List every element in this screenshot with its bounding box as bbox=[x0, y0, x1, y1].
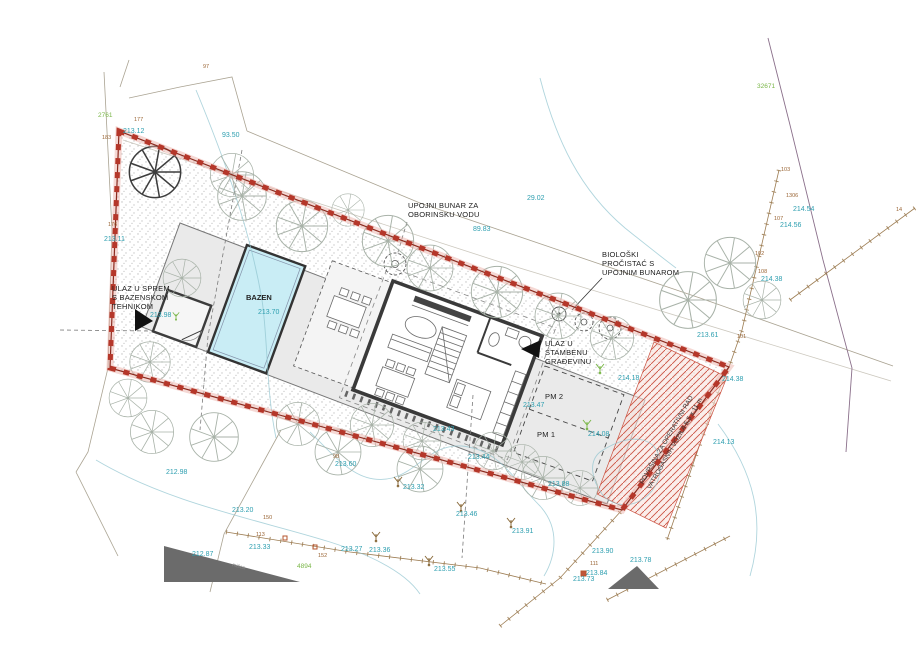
elevation-label: 213.44 bbox=[468, 454, 490, 461]
survey-point-id: 102 bbox=[755, 251, 764, 257]
survey-point-id: 150 bbox=[263, 515, 272, 521]
label-pm1: PM 1 bbox=[537, 430, 555, 439]
elevation-label: 213.55 bbox=[434, 566, 456, 573]
parcel-number: 32671 bbox=[757, 83, 775, 90]
survey-point-id: 111 bbox=[590, 561, 598, 567]
label-bio-purifier: BIOLOŠKI PROČISTAĆ S UPOJNIM BUNAROM bbox=[602, 250, 679, 277]
survey-point-id: 14 bbox=[896, 207, 902, 213]
elevation-label: 213.36 bbox=[369, 547, 391, 554]
boundary-length-label: 93.50 bbox=[222, 132, 240, 139]
survey-point-id: 103 bbox=[781, 167, 790, 173]
elevation-label: 213.12 bbox=[123, 128, 145, 135]
site-plan-canvas: mišca ULAZ U SPREM S BAZENSKOM TEHNIKOM … bbox=[0, 0, 919, 650]
elevation-label: 213.70 bbox=[258, 309, 280, 316]
label-storm-well: UPOJNI BUNAR ZA OBORINSKU VODU bbox=[408, 201, 480, 219]
elevation-label: 213.78 bbox=[630, 557, 652, 564]
boundary-length-label: 89.83 bbox=[473, 226, 491, 233]
elevation-label: 214.18 bbox=[618, 375, 640, 382]
survey-point-id: 183 bbox=[102, 135, 111, 141]
elevation-label: 214.38 bbox=[761, 276, 783, 283]
elevation-label: 213.47 bbox=[523, 402, 545, 409]
elevation-label: 213.60 bbox=[335, 461, 357, 468]
parcel-number: 2761 bbox=[98, 112, 113, 119]
label-pm2: PM 2 bbox=[545, 392, 563, 401]
elevation-label: 214.08 bbox=[588, 431, 610, 438]
elevation-label: 213.11 bbox=[104, 236, 125, 243]
elevation-label: 213.88 bbox=[548, 481, 570, 488]
elevation-label: 213.46 bbox=[456, 511, 478, 518]
survey-point-id: 107 bbox=[774, 216, 783, 222]
elevation-label: 213.73 bbox=[573, 576, 595, 583]
survey-point-id: 113 bbox=[256, 532, 265, 538]
elevation-label: 213.61 bbox=[697, 332, 719, 339]
elevation-label: 213.32 bbox=[403, 484, 425, 491]
elevation-label: 212.87 bbox=[192, 551, 214, 558]
elevation-label: 214.13 bbox=[713, 439, 735, 446]
survey-point-id: 152 bbox=[318, 553, 327, 559]
elevation-label: 213.43 bbox=[433, 426, 455, 433]
survey-point-id: 98 bbox=[333, 454, 339, 460]
elevation-label: 213.20 bbox=[232, 507, 254, 514]
label-pool: BAZEN bbox=[246, 293, 272, 302]
elevation-label: 214.54 bbox=[793, 206, 815, 213]
elevation-label: 213.90 bbox=[592, 548, 614, 555]
survey-point-id: 97 bbox=[203, 64, 209, 70]
boundary-length-label: 29.02 bbox=[527, 195, 545, 202]
site-plan: mišca ULAZ U SPREM S BAZENSKOM TEHNIKOM … bbox=[0, 0, 919, 650]
elevation-label: 213.27 bbox=[341, 546, 363, 553]
parcel-number: 4894 bbox=[297, 563, 312, 570]
survey-point-id: 108 bbox=[758, 269, 767, 275]
elevation-label: 213.91 bbox=[512, 528, 534, 535]
survey-point-id: 177 bbox=[134, 117, 143, 123]
elevation-label: 214.56 bbox=[780, 222, 802, 229]
elevation-label: 213.33 bbox=[249, 544, 271, 551]
survey-point-id: 176 bbox=[108, 222, 117, 228]
survey-point-id: 101 bbox=[737, 334, 746, 340]
elevation-label: 213.98 bbox=[150, 312, 172, 319]
survey-point-id: 1306 bbox=[786, 193, 798, 199]
elevation-label: 214.38 bbox=[722, 376, 744, 383]
elevation-label: 212.98 bbox=[166, 469, 188, 476]
